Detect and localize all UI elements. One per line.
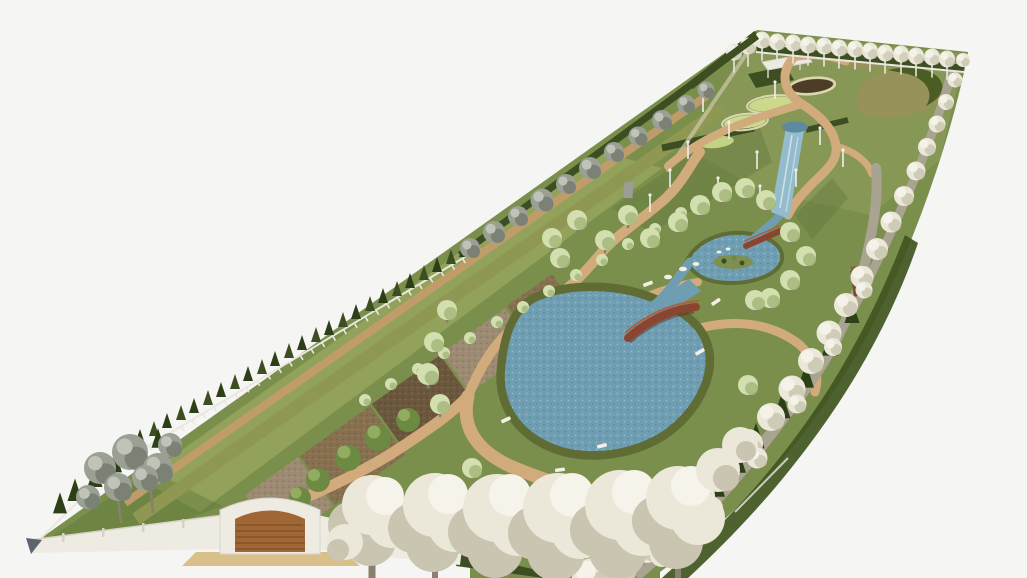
entrance-gate	[220, 498, 320, 554]
render-canvas: Aerial 3D architectural rendering of a l…	[0, 0, 1027, 578]
park-render	[0, 0, 1027, 578]
terrace-pool	[782, 122, 808, 133]
pond-island	[713, 255, 753, 269]
